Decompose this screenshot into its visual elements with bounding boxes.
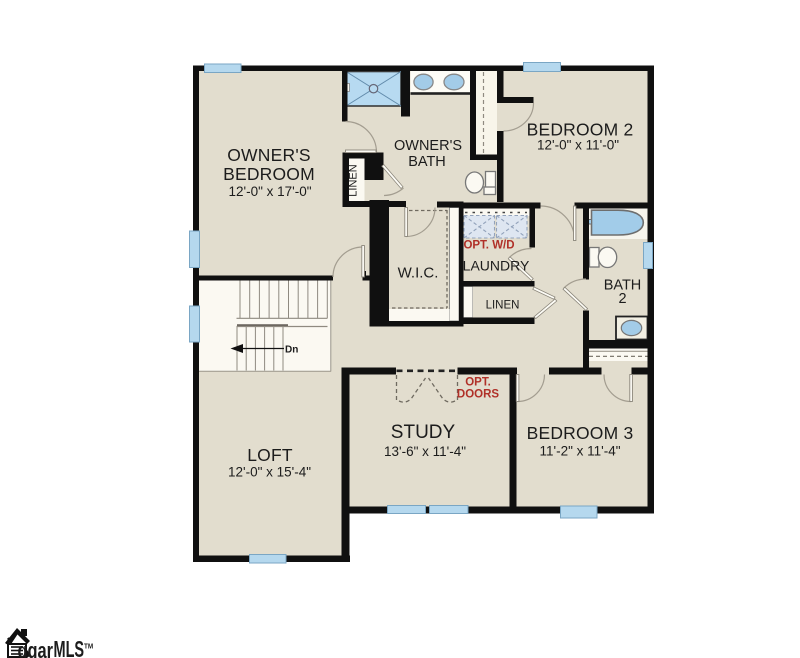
svg-text:Dn: Dn bbox=[285, 345, 298, 356]
svg-text:LINEN: LINEN bbox=[348, 164, 360, 196]
svg-text:OPT. W/D: OPT. W/D bbox=[463, 240, 514, 252]
svg-text:OWNER'S: OWNER'S bbox=[394, 138, 462, 154]
svg-text:13'-6" x 11'-4": 13'-6" x 11'-4" bbox=[384, 444, 466, 459]
svg-text:STUDY: STUDY bbox=[391, 422, 456, 443]
svg-text:DOORS: DOORS bbox=[457, 389, 500, 401]
svg-text:W.I.C.: W.I.C. bbox=[398, 265, 439, 282]
svg-text:BEDROOM 2: BEDROOM 2 bbox=[527, 120, 634, 140]
svg-text:LOFT: LOFT bbox=[247, 445, 293, 465]
svg-text:11'-2" x 11'-4": 11'-2" x 11'-4" bbox=[539, 444, 620, 459]
svg-text:12'-0" x 17'-0": 12'-0" x 17'-0" bbox=[228, 184, 311, 199]
svg-text:2: 2 bbox=[618, 291, 626, 307]
svg-text:MLS: MLS bbox=[54, 638, 85, 658]
svg-text:OPT.: OPT. bbox=[465, 377, 491, 389]
svg-text:BEDROOM 3: BEDROOM 3 bbox=[527, 423, 634, 443]
svg-text:LINEN: LINEN bbox=[486, 300, 520, 312]
svg-text:LAUNDRY: LAUNDRY bbox=[463, 258, 530, 274]
svg-text:12'-0" x 15'-4": 12'-0" x 15'-4" bbox=[228, 465, 311, 480]
svg-text:12'-0" x 11'-0": 12'-0" x 11'-0" bbox=[537, 138, 619, 153]
svg-text:TM: TM bbox=[84, 643, 93, 651]
svg-text:BATH: BATH bbox=[408, 154, 446, 170]
svg-text:OWNER'S: OWNER'S bbox=[227, 145, 311, 165]
svg-text:ggar: ggar bbox=[18, 639, 54, 658]
svg-text:BEDROOM: BEDROOM bbox=[223, 164, 315, 184]
